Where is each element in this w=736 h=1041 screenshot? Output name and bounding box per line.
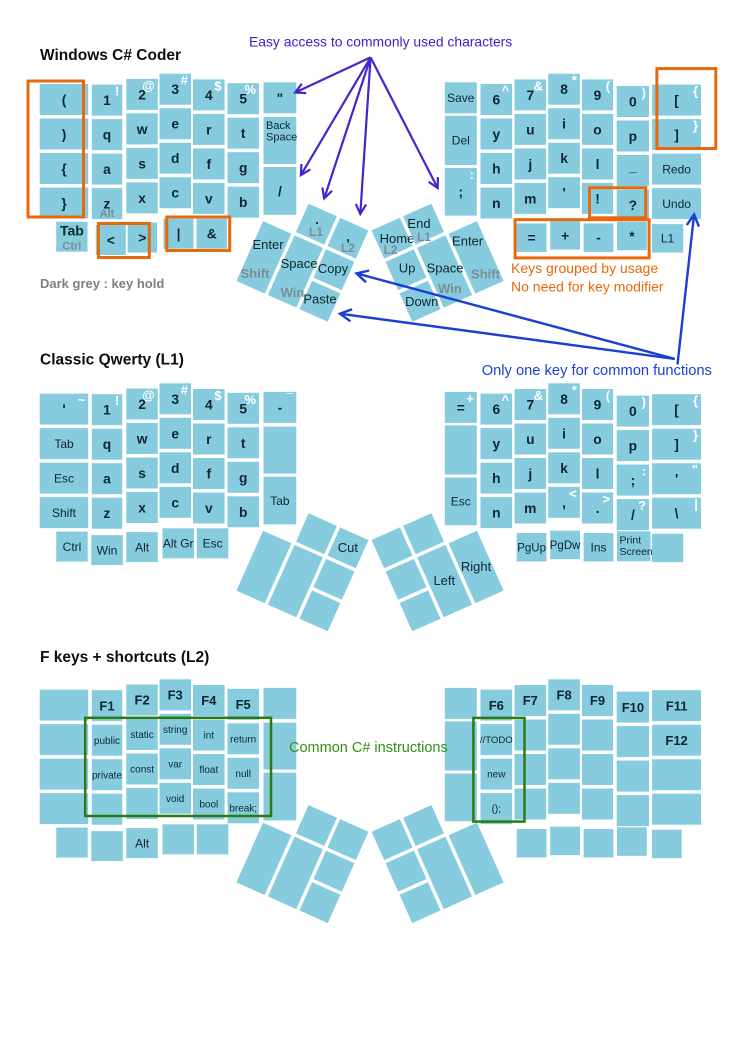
svg-text:i: i [562,426,566,441]
svg-text:': ' [562,186,565,201]
svg-text:Del: Del [452,134,470,148]
svg-text:': ' [62,402,65,417]
svg-text:Esc: Esc [451,495,471,509]
svg-text:&: & [534,388,543,403]
svg-text:$: $ [214,388,222,403]
svg-text:Cut: Cut [338,540,359,555]
svg-text:L2: L2 [384,243,398,257]
svg-text:": " [692,462,698,477]
svg-text:]: ] [674,437,679,452]
svg-text:Undo: Undo [662,197,691,211]
svg-text:Esc: Esc [54,471,74,485]
svg-text:float: float [199,765,218,776]
svg-text:F6: F6 [489,698,504,713]
svg-text:w: w [136,432,148,447]
svg-text:?: ? [638,498,646,513]
svg-text:": " [277,91,284,106]
svg-text:Right: Right [461,559,492,574]
svg-text:;: ; [631,473,636,488]
svg-text:Shift: Shift [241,266,271,281]
svg-text:&: & [207,227,217,242]
svg-text:F12: F12 [665,733,687,748]
svg-text:void: void [166,794,184,805]
svg-text:PgDw: PgDw [550,540,581,552]
svg-text:b: b [239,505,247,520]
svg-text:Space: Space [427,260,464,275]
svg-text:d: d [171,461,179,476]
svg-text:1: 1 [103,403,111,418]
svg-text:Alt: Alt [100,208,115,220]
svg-text:>: > [603,492,611,507]
svg-text:-: - [278,400,283,415]
svg-text:k: k [560,151,568,166]
svg-text:int: int [204,731,215,742]
svg-text:L1: L1 [661,232,675,246]
svg-text:m: m [524,191,536,206]
svg-text:F9: F9 [590,693,605,708]
svg-text:L1: L1 [309,225,323,239]
svg-text:Common C# instructions: Common C# instructions [289,740,448,756]
svg-text:%: % [244,82,256,97]
svg-text:x: x [138,501,146,516]
svg-text:|: | [694,497,698,512]
svg-text:9: 9 [594,88,602,103]
svg-text:): ) [642,85,646,100]
svg-text:Tab: Tab [54,437,74,451]
svg-text:*: * [629,229,635,244]
svg-text:1: 1 [103,93,111,108]
svg-text:8: 8 [560,392,568,407]
svg-text:n: n [492,196,500,211]
svg-text:3: 3 [171,392,179,407]
svg-text:PgUp: PgUp [517,542,546,554]
svg-text:u: u [526,122,534,137]
svg-text:q: q [103,437,111,452]
svg-text:_: _ [628,160,637,175]
svg-text:j: j [527,157,532,172]
svg-text:|: | [177,227,181,242]
svg-text:No need for key modifier: No need for key modifier [511,279,664,295]
svg-text:Esc: Esc [203,537,223,551]
svg-text:s: s [138,466,146,481]
svg-text:#: # [181,382,189,397]
svg-text:Shift: Shift [52,506,77,520]
svg-text:3: 3 [171,82,179,97]
svg-text::: : [469,167,473,182]
svg-text:F8: F8 [557,688,572,703]
svg-text:private: private [92,770,122,781]
svg-text:): ) [642,395,646,410]
svg-text:a: a [103,162,111,177]
svg-text:-: - [596,231,601,246]
svg-text:/: / [278,184,282,199]
svg-text:i: i [562,117,566,132]
svg-text:t: t [241,126,246,141]
svg-text:c: c [171,186,179,201]
svg-text:t: t [241,436,246,451]
svg-text:>: > [138,231,146,246]
svg-text:L1: L1 [417,230,431,244]
svg-text:Down: Down [405,294,438,309]
svg-text:g: g [239,161,247,176]
svg-text:&: & [534,78,543,93]
svg-text:Easy access to commonly used c: Easy access to commonly used characters [249,34,512,50]
svg-text:¯: ¯ [285,391,294,406]
svg-text:Ctrl: Ctrl [63,540,82,554]
svg-text:{: { [693,393,698,408]
svg-text:Space: Space [266,132,297,144]
svg-text:Win: Win [97,543,118,557]
svg-text:4: 4 [205,88,213,103]
svg-text:l: l [596,157,600,172]
svg-text:F4: F4 [201,693,217,708]
svg-text:9: 9 [594,398,602,413]
svg-text:Screen: Screen [620,546,653,558]
svg-text:u: u [526,432,534,447]
svg-text:Save: Save [447,91,475,105]
svg-text:w: w [136,122,148,137]
svg-text:Paste: Paste [303,292,336,307]
svg-text:e: e [171,426,179,441]
svg-text:g: g [239,470,247,485]
svg-text:!: ! [115,84,119,99]
svg-text:public: public [94,736,120,747]
svg-text:Shift: Shift [471,267,501,282]
svg-text:Copy: Copy [318,261,349,276]
svg-text:new: new [487,770,506,781]
svg-text:0: 0 [629,95,637,110]
svg-text::: : [642,464,646,479]
svg-text:<: < [107,233,115,248]
svg-text:f: f [206,467,211,482]
svg-text:y: y [492,437,500,452]
svg-text:End: End [407,216,430,231]
svg-text:const: const [130,765,154,776]
svg-text:var: var [168,759,183,770]
svg-text:^: ^ [502,393,510,408]
svg-text:]: ] [674,128,679,143]
svg-text:break;: break; [229,803,257,814]
svg-text:d: d [171,151,179,166]
svg-text:Space: Space [281,256,318,271]
svg-text:F1: F1 [99,698,114,713]
svg-text:c: c [171,495,179,510]
svg-text:(: ( [62,93,67,108]
svg-text:Dark grey : key hold: Dark grey : key hold [40,276,164,291]
svg-text:f: f [206,157,211,172]
svg-text:/: / [631,508,635,523]
svg-text:Windows C# Coder: Windows C# Coder [40,47,181,64]
svg-text:6: 6 [492,402,500,417]
svg-text:,: , [562,495,566,510]
svg-text:return: return [230,734,256,745]
svg-text:Left: Left [433,573,455,588]
svg-text:();: (); [492,804,501,815]
svg-text:a: a [103,472,111,487]
svg-text:static: static [130,730,153,741]
svg-text:{: { [693,84,698,99]
svg-text:h: h [492,471,500,486]
svg-text:Win: Win [438,281,462,296]
svg-text:}: } [693,118,698,133]
svg-text:bool: bool [199,800,218,811]
svg-text:Tab: Tab [60,223,84,239]
svg-text:<: < [569,486,577,501]
svg-text:o: o [593,432,601,447]
svg-text:s: s [138,156,146,171]
svg-text:!: ! [595,191,600,206]
svg-text:): ) [62,127,67,142]
svg-text:^: ^ [502,83,510,98]
svg-text:{: { [61,162,67,177]
svg-text:?: ? [629,198,637,213]
svg-text:h: h [492,162,500,177]
svg-text:Alt: Alt [135,836,150,850]
svg-text:y: y [492,127,500,142]
svg-text:\: \ [675,506,679,521]
svg-text:Classic Qwerty (L1): Classic Qwerty (L1) [40,352,184,369]
svg-text:0: 0 [629,404,637,419]
svg-text:Redo: Redo [662,162,691,176]
svg-text:Enter: Enter [452,233,484,248]
svg-text:@: @ [142,388,155,403]
svg-text:F2: F2 [135,693,150,708]
svg-text:k: k [560,461,568,476]
svg-text:n: n [492,506,500,521]
svg-text:v: v [205,191,213,206]
svg-text:Print: Print [620,535,642,547]
svg-text:@: @ [142,78,155,93]
svg-text:j: j [527,467,532,482]
svg-text:=: = [457,400,465,415]
svg-text:Tab: Tab [270,494,290,508]
svg-text:6: 6 [492,93,500,108]
svg-text:o: o [593,122,601,137]
svg-text:Keys grouped by usage: Keys grouped by usage [511,260,658,276]
svg-text:$: $ [214,78,222,93]
svg-text:Enter: Enter [252,237,284,252]
svg-text:Alt Gr: Alt Gr [163,537,194,551]
svg-text:e: e [171,117,179,132]
svg-text:p: p [629,129,637,144]
svg-text:F3: F3 [168,688,183,703]
svg-text:F7: F7 [523,693,538,708]
svg-text:m: m [524,501,536,516]
svg-text:(: ( [606,388,611,403]
svg-text:Only one key for common functi: Only one key for common functions [482,363,712,379]
svg-text:Win: Win [281,285,305,300]
svg-text:x: x [138,191,146,206]
svg-text:z: z [104,506,111,521]
svg-text:8: 8 [560,82,568,97]
svg-text:;: ; [458,185,463,200]
svg-text:L2: L2 [341,241,355,255]
svg-text:F11: F11 [666,698,688,713]
svg-text:~: ~ [78,393,86,408]
svg-text:Ctrl: Ctrl [62,241,81,253]
svg-text:#: # [181,73,189,88]
svg-text:Back: Back [266,120,291,132]
svg-text:=: = [528,231,536,246]
svg-text:Alt: Alt [135,540,150,554]
svg-text:%: % [244,392,256,407]
svg-text://TODO: //TODO [480,735,513,746]
svg-text:r: r [206,122,212,137]
svg-text:4: 4 [205,398,213,413]
svg-text:b: b [239,195,247,210]
svg-text:Up: Up [399,260,416,275]
svg-text:.: . [596,501,600,516]
svg-text:q: q [103,128,111,143]
svg-text:+: + [561,228,569,243]
svg-text:r: r [206,432,212,447]
svg-text:Ins: Ins [590,541,606,555]
svg-text:p: p [629,439,637,454]
svg-text:}: } [61,196,67,211]
svg-text:F keys + shortcuts (L2): F keys + shortcuts (L2) [40,649,209,666]
svg-text:+: + [466,391,474,406]
svg-text:null: null [235,769,251,780]
svg-text:[: [ [674,403,679,418]
svg-text:!: ! [115,393,119,408]
svg-text:v: v [205,501,213,516]
svg-text:}: } [693,428,698,443]
svg-text:(: ( [606,78,611,93]
svg-text:l: l [596,467,600,482]
svg-text:string: string [163,725,187,736]
svg-text:': ' [675,472,678,487]
svg-text:F10: F10 [622,700,644,715]
svg-text:F5: F5 [236,697,251,712]
svg-text:[: [ [674,93,679,108]
